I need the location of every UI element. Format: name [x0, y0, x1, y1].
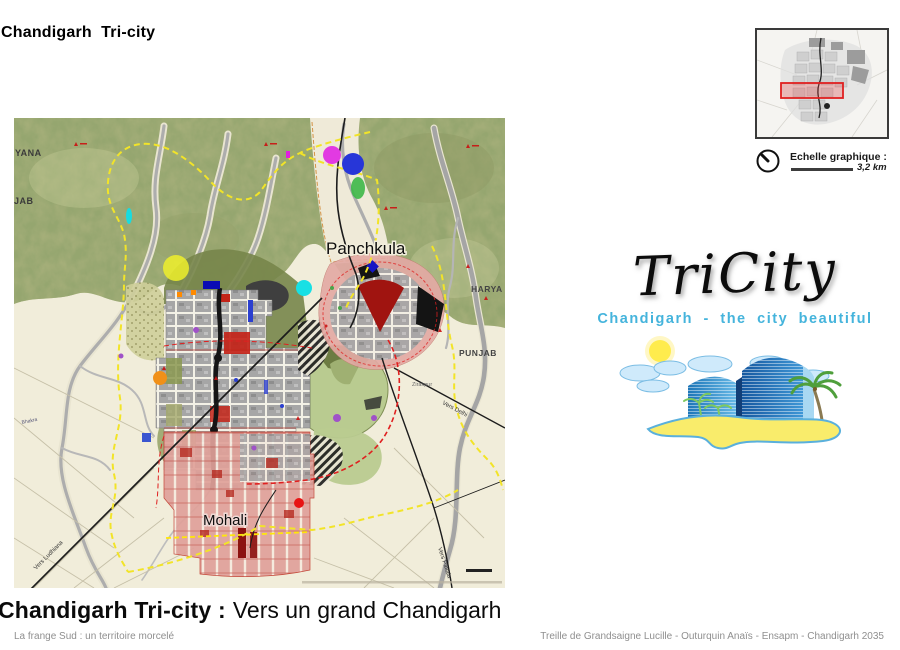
- inset-highlight-rectangle: [781, 83, 843, 98]
- map-source-microtext: [302, 581, 502, 584]
- slide-page: Chandigarh Tri-city: [0, 0, 900, 650]
- map-label-punjab-right: PUNJAB: [459, 348, 497, 358]
- mohali-area: [164, 432, 314, 577]
- caption-bold: Chandigarh Tri-city :: [0, 597, 226, 623]
- compass-icon: [755, 148, 781, 174]
- map-label-zirakpur: Zirakpur: [412, 382, 432, 388]
- tricity-logo-title: TriCity: [574, 240, 896, 308]
- scale-value: 3,2 km: [857, 162, 887, 173]
- caption-regular: Vers un grand Chandigarh: [233, 597, 502, 623]
- inset-locator-map: [755, 28, 889, 139]
- map-label-haryana-right: HARYA: [471, 284, 503, 294]
- caption-subtitle: La frange Sud : un territoire morcelé: [14, 631, 174, 642]
- capitol-complex-marker: [203, 281, 220, 289]
- island: [648, 415, 840, 448]
- tricity-map: YANA JAB Panchkula Mohali HARYA PUNJAB Z…: [14, 118, 505, 588]
- bottom-caption: Chandigarh Tri-city :Vers un grand Chand…: [0, 597, 501, 624]
- tricity-logo: TriCity Chandigarh - the city beautiful: [575, 246, 895, 456]
- scale-bar: [791, 168, 853, 171]
- tricity-logo-illustration: [618, 331, 853, 451]
- map-label-mohali: Mohali: [203, 512, 247, 529]
- map-label-haryana-left: YANA: [15, 148, 42, 158]
- map-label-punjab-left: JAB: [14, 196, 34, 206]
- scale-block: Echelle graphique : 3,2 km: [755, 146, 900, 192]
- map-label-panchkula: Panchkula: [326, 239, 406, 258]
- tricity-logo-tagline: Chandigarh - the city beautiful: [575, 311, 895, 327]
- page-title: Chandigarh Tri-city: [1, 24, 155, 42]
- footer-credits: Treille de Grandsaigne Lucille - Outurqu…: [540, 631, 884, 642]
